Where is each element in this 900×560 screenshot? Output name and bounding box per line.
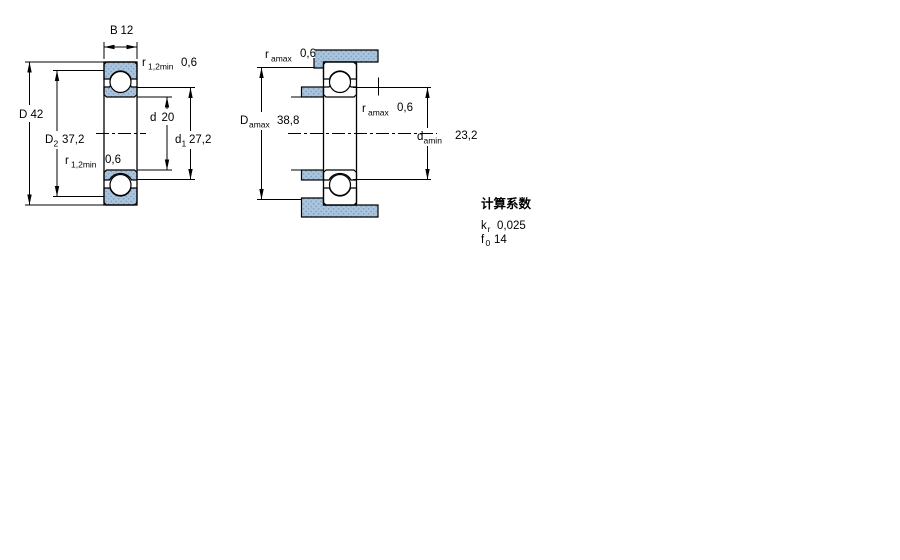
dim-r12bot-symbol: r xyxy=(65,155,69,167)
dim-d-symbol: d xyxy=(150,112,156,124)
shaft-shoulder-bottom xyxy=(302,170,324,180)
factor-kr-subscript: r xyxy=(488,224,491,234)
dim-ramaxtop-subscript: amax xyxy=(271,54,293,64)
arrowhead xyxy=(188,169,192,180)
arrowhead xyxy=(165,160,169,171)
dim-r12top-symbol: r xyxy=(142,57,146,69)
dim-r12bot-value: 0,6 xyxy=(105,154,121,166)
dim-ramaxmid-value: 0,6 xyxy=(397,102,413,114)
arrowhead xyxy=(55,71,59,82)
arrowhead xyxy=(188,88,192,99)
dim-ramaxmid-symbol: r xyxy=(362,103,366,115)
dimension-r12-bottom: r 1,2min 0,6 xyxy=(65,154,121,170)
arrowhead xyxy=(425,88,429,99)
dimension-D2: D 2 37,2 xyxy=(45,71,104,197)
dimension-B: B 12 xyxy=(104,25,137,59)
arrowhead xyxy=(127,45,138,49)
dim-B-symbol: B xyxy=(110,25,118,37)
calculation-factors-heading: 计算系数 xyxy=(481,196,532,211)
arrowhead xyxy=(55,186,59,197)
factor-f0-subscript: 0 xyxy=(486,238,491,248)
ball-bottom xyxy=(330,175,351,196)
dim-r12bot-subscript: 1,2min xyxy=(71,160,97,170)
arrowhead xyxy=(104,45,115,49)
dim-Damax-value: 38,8 xyxy=(277,115,299,127)
dim-D-value: 42 xyxy=(31,109,44,121)
dimension-ramax-top: r amax 0,6 xyxy=(265,47,316,64)
arrowhead xyxy=(27,62,31,73)
ball-bottom xyxy=(110,175,131,196)
dim-Damax-symbol: D xyxy=(240,115,248,127)
dimension-ramax-mid: r amax 0,6 xyxy=(362,78,413,118)
calculation-factors-block: 计算系数 k r 0,025 f 0 14 xyxy=(481,196,532,248)
dim-Damax-subscript: amax xyxy=(249,120,271,130)
arrowhead xyxy=(259,189,263,200)
arrowhead xyxy=(165,97,169,108)
ball-top xyxy=(330,72,351,93)
dim-r12top-subscript: 1,2min xyxy=(148,62,174,72)
dim-damin-value: 23,2 xyxy=(455,130,477,142)
bearing-technical-drawing: B 12 D 42 D 2 37,2 xyxy=(0,0,900,560)
dim-ramaxmid-subscript: amax xyxy=(368,108,390,118)
dim-damin-symbol: d xyxy=(417,131,423,143)
factor-kr-value: 0,025 xyxy=(497,220,526,232)
factor-row-f0: f 0 14 xyxy=(481,234,507,248)
dim-D-symbol: D xyxy=(19,109,27,121)
dim-d-value: 20 xyxy=(162,112,175,124)
factor-f0-value: 14 xyxy=(494,234,507,246)
dim-damin-subscript: amin xyxy=(424,136,443,146)
factor-row-kr: k r 0,025 xyxy=(481,220,526,234)
dim-ramaxtop-value: 0,6 xyxy=(300,48,316,60)
dim-ramaxtop-symbol: r xyxy=(265,49,269,61)
factor-f0-symbol: f xyxy=(481,234,485,246)
left-view-bearing-section: B 12 D 42 D 2 37,2 xyxy=(19,25,211,205)
dim-d1-value: 27,2 xyxy=(189,134,211,146)
dim-D2-subscript: 2 xyxy=(54,139,59,149)
arrowhead xyxy=(259,68,263,79)
dim-r12top-value: 0,6 xyxy=(181,57,197,69)
bearing-drawing-page: B 12 D 42 D 2 37,2 xyxy=(0,0,900,560)
dim-B-value: 12 xyxy=(121,25,134,37)
shaft-shoulder-top xyxy=(302,87,324,97)
factor-kr-symbol: k xyxy=(481,220,487,232)
dimension-d1: d 1 27,2 xyxy=(137,88,211,180)
right-view-abutments: D amax 38,8 d amin 23,2 r amax 0,6 r ama… xyxy=(240,47,477,217)
dim-d1-symbol: d xyxy=(175,134,181,146)
dim-D2-symbol: D xyxy=(45,134,53,146)
dim-D2-value: 37,2 xyxy=(62,134,84,146)
ball-top xyxy=(110,72,131,93)
dim-d1-subscript: 1 xyxy=(182,139,187,149)
arrowhead xyxy=(425,169,429,180)
arrowhead xyxy=(27,195,31,206)
dimension-r12-top: r 1,2min 0,6 xyxy=(142,57,197,72)
